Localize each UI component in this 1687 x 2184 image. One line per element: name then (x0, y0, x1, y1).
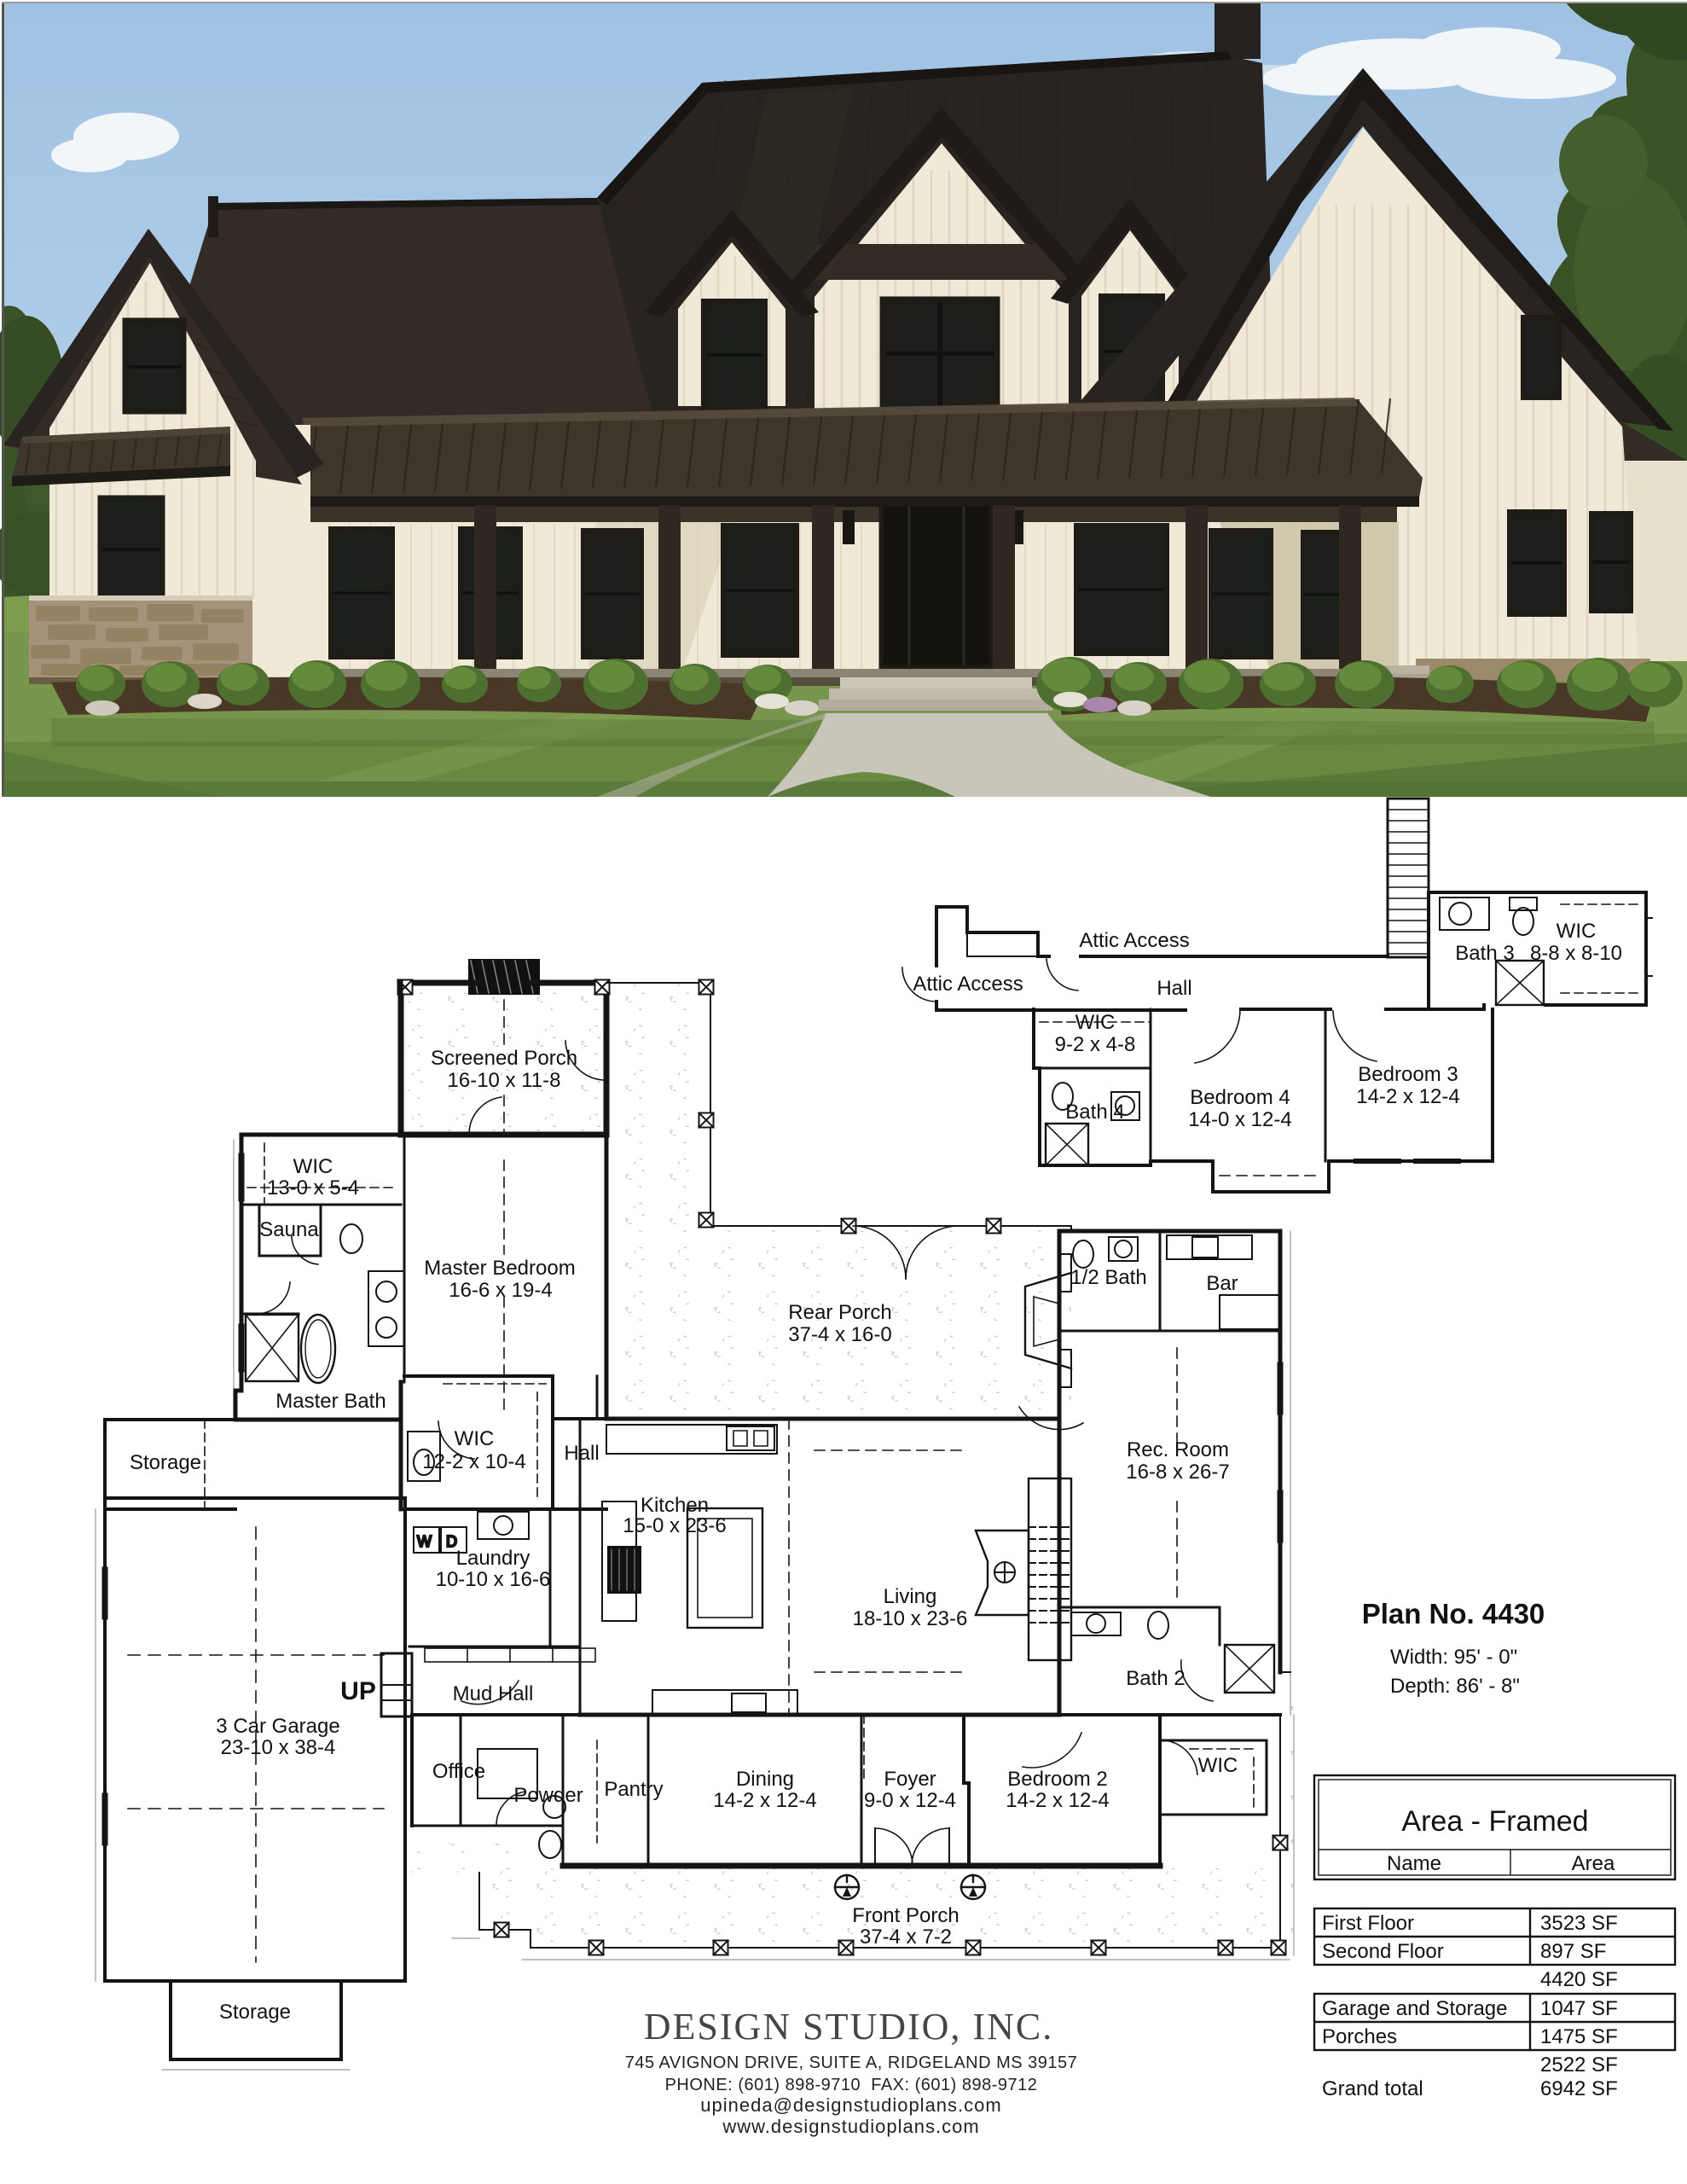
svg-text:Foyer: Foyer (884, 1768, 936, 1791)
svg-text:745 AVIGNON DRIVE, SUITE A, RI: 745 AVIGNON DRIVE, SUITE A, RIDGELAND MS… (625, 2053, 1078, 2072)
svg-text:14-0 x 12-4: 14-0 x 12-4 (1188, 1108, 1291, 1131)
svg-text:Office: Office (432, 1760, 485, 1783)
svg-text:Plan No. 4430: Plan No. 4430 (1362, 1598, 1545, 1629)
svg-text:37-4 x 7-2: 37-4 x 7-2 (860, 1926, 952, 1949)
svg-text:www.designstudioplans.com: www.designstudioplans.com (722, 2116, 979, 2137)
svg-text:12-2 x 10-4: 12-2 x 10-4 (422, 1450, 525, 1473)
svg-text:13-0 x 5-4: 13-0 x 5-4 (267, 1176, 359, 1199)
svg-text:Attic Access: Attic Access (913, 973, 1023, 996)
svg-text:Pantry: Pantry (604, 1778, 663, 1801)
svg-text:Area - Framed: Area - Framed (1401, 1805, 1588, 1838)
svg-text:W: W (417, 1533, 432, 1550)
svg-text:897 SF: 897 SF (1540, 1940, 1606, 1963)
svg-text:Living: Living (884, 1585, 937, 1608)
svg-text:1047 SF: 1047 SF (1540, 1997, 1618, 2020)
svg-text:8-8 x 8-10: 8-8 x 8-10 (1530, 942, 1622, 965)
svg-text:Attic Access: Attic Access (1079, 929, 1189, 952)
svg-text:6942 SF: 6942 SF (1540, 2077, 1618, 2100)
svg-text:Garage and Storage: Garage and Storage (1322, 1997, 1508, 2020)
svg-text:9-0 x 12-4: 9-0 x 12-4 (864, 1789, 956, 1812)
svg-text:WIC: WIC (1075, 1011, 1116, 1034)
svg-text:14-2 x 12-4: 14-2 x 12-4 (1006, 1789, 1109, 1812)
svg-text:Mud Hall: Mud Hall (453, 1682, 534, 1705)
svg-text:16-10 x 11-8: 16-10 x 11-8 (448, 1069, 561, 1092)
svg-text:Front Porch: Front Porch (852, 1904, 959, 1927)
svg-text:Bath 4: Bath 4 (1065, 1101, 1124, 1124)
svg-text:15-0 x 23-6: 15-0 x 23-6 (623, 1514, 726, 1537)
svg-text:Powder: Powder (513, 1784, 583, 1807)
svg-text:Rec. Room: Rec. Room (1127, 1438, 1229, 1461)
svg-text:WIC: WIC (455, 1427, 495, 1450)
svg-text:First Floor: First Floor (1322, 1912, 1414, 1935)
svg-text:Second Floor: Second Floor (1322, 1940, 1444, 1963)
svg-text:Storage: Storage (219, 2001, 291, 2024)
svg-text:Hall: Hall (1157, 977, 1191, 1000)
svg-text:Dining: Dining (736, 1768, 794, 1791)
svg-text:18-10 x 23-6: 18-10 x 23-6 (853, 1607, 968, 1630)
svg-text:Depth: 86' - 8": Depth: 86' - 8" (1390, 1675, 1520, 1698)
svg-text:Width: 95' - 0": Width: 95' - 0" (1390, 1646, 1517, 1669)
svg-text:Master Bath: Master Bath (275, 1390, 386, 1413)
svg-text:WIC: WIC (1198, 1754, 1238, 1777)
svg-text:Rear Porch: Rear Porch (788, 1301, 891, 1324)
svg-text:upineda@designstudioplans.com: upineda@designstudioplans.com (700, 2094, 1001, 2116)
svg-text:2522 SF: 2522 SF (1540, 2053, 1618, 2077)
svg-text:4420 SF: 4420 SF (1540, 1968, 1618, 1991)
svg-text:WIC: WIC (1557, 920, 1597, 943)
svg-text:UP: UP (340, 1677, 376, 1705)
svg-text:14-2 x 12-4: 14-2 x 12-4 (713, 1789, 816, 1812)
svg-text:Bath 3: Bath 3 (1455, 942, 1514, 965)
svg-text:16-6 x 19-4: 16-6 x 19-4 (449, 1279, 552, 1302)
svg-text:Hall: Hall (564, 1442, 599, 1465)
svg-text:DESIGN STUDIO, INC.: DESIGN STUDIO, INC. (644, 2006, 1053, 2047)
svg-text:Bedroom 3: Bedroom 3 (1358, 1063, 1458, 1086)
svg-text:Bedroom 4: Bedroom 4 (1190, 1086, 1290, 1109)
svg-text:37-4 x 16-0: 37-4 x 16-0 (788, 1323, 891, 1346)
svg-text:16-8 x 26-7: 16-8 x 26-7 (1126, 1461, 1229, 1484)
svg-text:10-10 x 16-6: 10-10 x 16-6 (436, 1568, 551, 1591)
svg-text:3523 SF: 3523 SF (1540, 1912, 1618, 1935)
svg-text:Area: Area (1572, 1852, 1615, 1875)
svg-text:Bath 2: Bath 2 (1126, 1667, 1185, 1690)
svg-text:PHONE: (601) 898-9710 FAX: (6: PHONE: (601) 898-9710 FAX: (601) 898-971… (665, 2076, 1038, 2094)
svg-text:WIC: WIC (293, 1155, 333, 1178)
svg-text:Porches: Porches (1322, 2025, 1397, 2048)
svg-text:Grand total: Grand total (1322, 2077, 1423, 2100)
svg-text:Name: Name (1387, 1852, 1441, 1875)
svg-text:14-2 x 12-4: 14-2 x 12-4 (1356, 1085, 1459, 1108)
svg-text:9-2 x 4-8: 9-2 x 4-8 (1055, 1033, 1136, 1056)
svg-text:23-10 x 38-4: 23-10 x 38-4 (221, 1736, 336, 1759)
svg-text:1475 SF: 1475 SF (1540, 2025, 1618, 2048)
svg-text:Master Bedroom: Master Bedroom (424, 1257, 575, 1280)
svg-text:Kitchen: Kitchen (641, 1494, 709, 1517)
svg-text:Bedroom 2: Bedroom 2 (1007, 1768, 1107, 1791)
svg-text:Screened Porch: Screened Porch (431, 1047, 577, 1070)
svg-text:1/2 Bath: 1/2 Bath (1070, 1266, 1146, 1289)
svg-text:Sauna: Sauna (259, 1218, 319, 1241)
svg-text:Laundry: Laundry (456, 1547, 530, 1570)
svg-text:Bar: Bar (1206, 1272, 1238, 1295)
svg-text:Storage: Storage (130, 1451, 201, 1474)
svg-text:3 Car Garage: 3 Car Garage (216, 1715, 339, 1738)
